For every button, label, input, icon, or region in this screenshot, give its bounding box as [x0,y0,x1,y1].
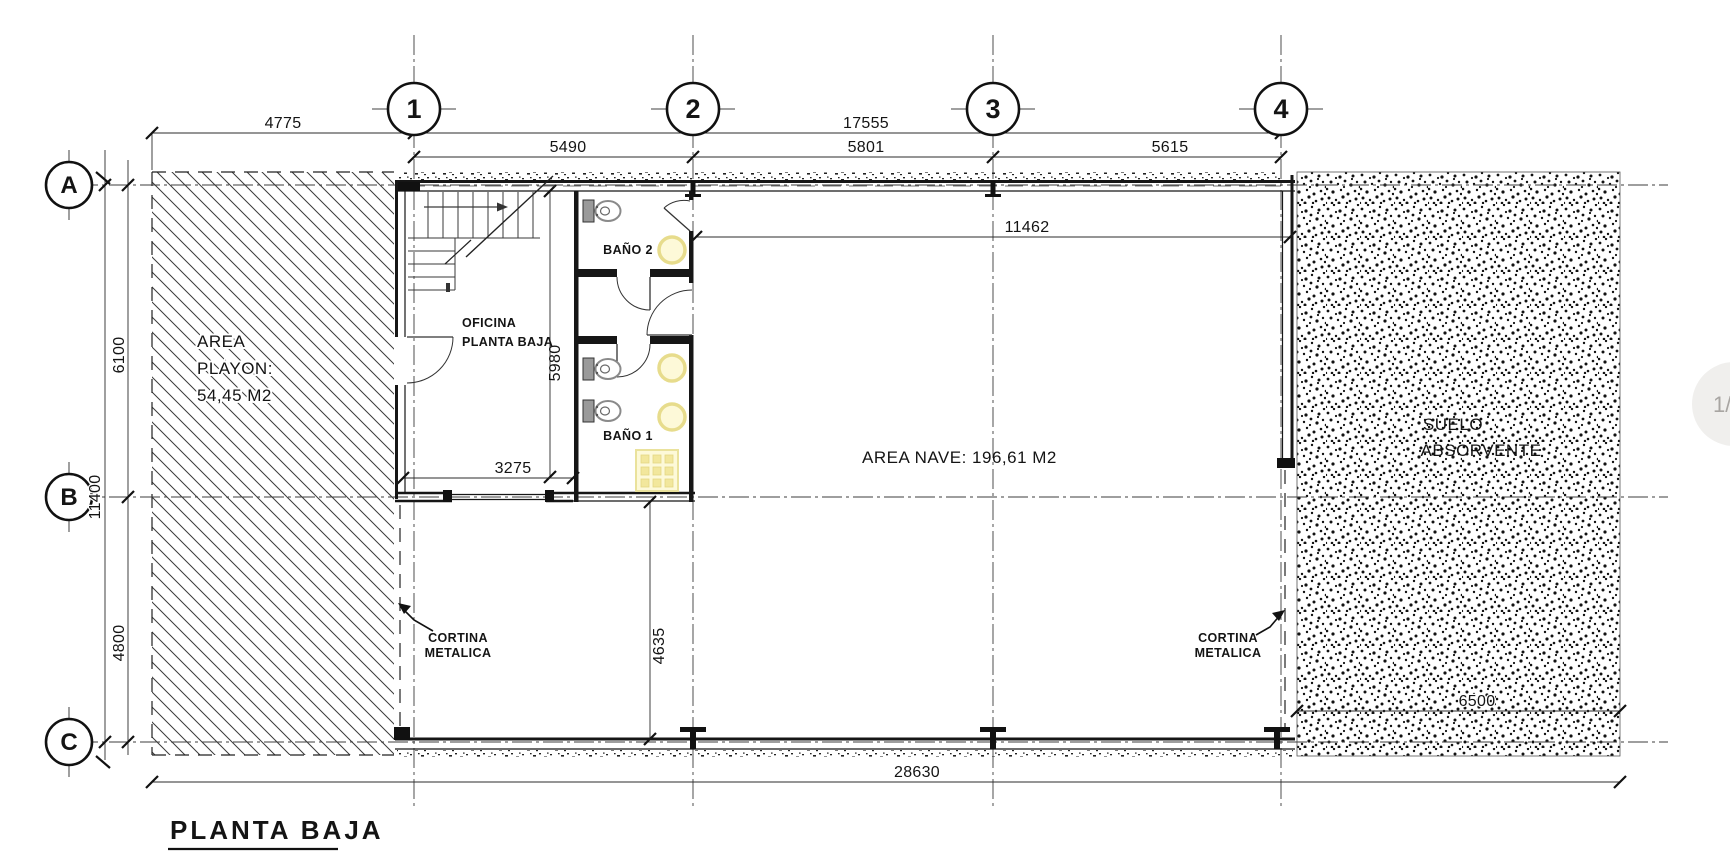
toilet-icon [583,358,621,380]
grid-bubble-3: 3 [951,83,1035,135]
dim-5980: 5980 [547,345,564,382]
area-nave-label: AREA NAVE: 196,61 M2 [862,448,1057,467]
grid-bubble-4: 4 [1239,83,1323,135]
office-label-line1: OFICINA [462,316,516,330]
door-bano1 [617,344,650,377]
grid-label-a: A [60,172,77,199]
suelo-label-line2: ABSORVENTE [1421,441,1542,460]
cortina-right-line1: CORTINA [1198,631,1258,645]
door-bano2-top [664,200,690,231]
page-badge-label[interactable]: 1/ [1713,392,1730,417]
dim-17555: 17555 [843,115,889,132]
dim-11400: 11400 [87,475,104,520]
grid-bubble-b: B [46,462,92,532]
sink-icon [659,355,685,381]
suelo-absorvente-stipple [1297,172,1620,756]
dim-4800: 4800 [111,625,128,662]
floor-plan-canvas: 1 2 3 4 A B [0,0,1730,862]
door-bano2 [617,277,650,310]
grid-label-3: 3 [985,94,1000,124]
cortina-annotation-right: CORTINA METALICA [1195,610,1285,660]
grid-bubble-1: 1 [372,83,456,135]
office-label-line2: PLANTA BAJA [462,335,553,349]
arrowhead-icon [1272,610,1285,621]
page-title: PLANTA BAJA [170,815,384,845]
playon-label-line2: PLAYON: [197,359,273,378]
dim-5615: 5615 [1152,139,1189,156]
dim-5801: 5801 [848,139,885,156]
sink-icon [659,404,685,430]
bottom-wall-texture [397,750,1293,757]
playon-label-line3: 54,45 M2 [197,386,272,405]
cortina-left-line1: CORTINA [428,631,488,645]
toilet-icon [583,200,621,222]
drawing-title: PLANTA BAJA [168,815,384,849]
page-badge[interactable]: 1/ [1692,362,1730,446]
grid-label-2: 2 [685,94,700,124]
top-wall-texture [398,172,1282,181]
cortina-annotation-left: CORTINA METALICA [398,603,491,660]
door-corridor [647,290,692,335]
cortina-right-line2: METALICA [1195,646,1262,660]
grid-label-1: 1 [406,94,421,124]
playon-label-line1: AREA [197,332,245,351]
grid-label-b: B [60,484,77,511]
grid-label-4: 4 [1273,94,1288,124]
grid-bubble-2: 2 [651,83,735,135]
dim-4635: 4635 [651,628,668,665]
sink-icon [659,237,685,263]
grid-label-c: C [60,729,77,756]
dim-5490: 5490 [550,139,587,156]
grid-bubble-a: A [46,150,110,220]
toilet-icon [583,400,621,422]
dim-6500: 6500 [1459,693,1496,710]
dim-4775: 4775 [265,115,302,132]
bano1-label: BAÑO 1 [603,428,653,443]
suelo-label-line1: SUELO [1423,415,1483,434]
grid-bubbles-rows: A B C [46,150,110,777]
cortina-left-line2: METALICA [425,646,492,660]
stairs-icon [408,176,553,292]
dim-6100: 6100 [111,337,128,374]
shower-icon [636,450,678,491]
dim-11462: 11462 [1005,219,1050,236]
grid-bubble-c: C [46,707,110,777]
dim-3275: 3275 [495,460,532,477]
bano2-label: BAÑO 2 [603,242,653,257]
area-playon-hatch [152,172,394,755]
dim-28630: 28630 [894,764,940,781]
